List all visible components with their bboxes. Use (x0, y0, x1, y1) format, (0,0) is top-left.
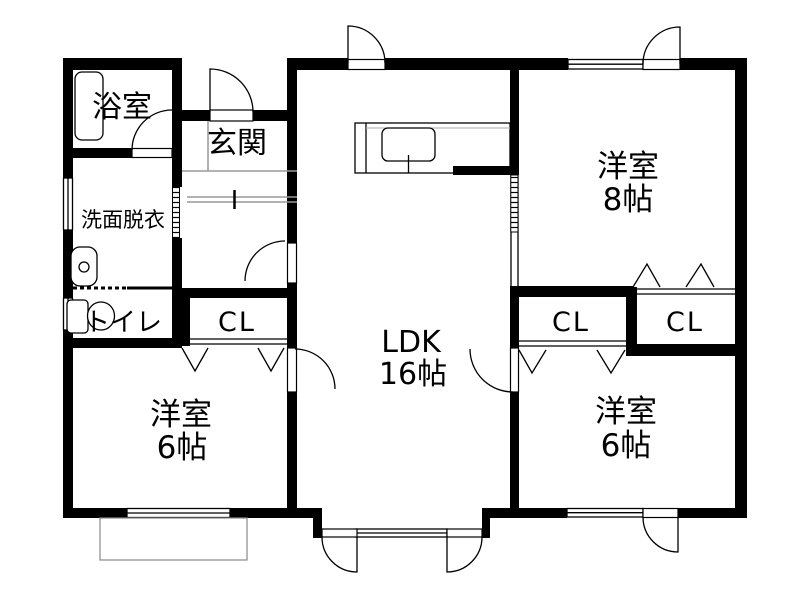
label-closet-hall: CL (218, 307, 256, 338)
sliding-doors (173, 175, 519, 286)
floor-plan: 浴室 玄関 洗面脱衣 トイレ CL LDK 16帖 洋室 6帖 洋室 8帖 CL… (0, 0, 800, 600)
hall-ldk-door (245, 241, 297, 283)
label-ldk: LDK (381, 325, 442, 360)
label-washroom: 洗面脱衣 (81, 208, 165, 232)
label-bedroom-sw-size: 6帖 (157, 430, 208, 466)
doors (132, 26, 680, 572)
bedroom-ne-north-door (643, 27, 680, 70)
label-bedroom-ne: 洋室 (597, 149, 659, 185)
terrace (100, 518, 247, 560)
label-closet-east-right: CL (666, 307, 704, 338)
label-toilet: トイレ (84, 308, 162, 338)
kitchen-half-wall (453, 166, 519, 175)
washroom-window (64, 178, 73, 230)
label-bedroom-ne-size: 8帖 (603, 182, 654, 218)
entrance-door (210, 69, 253, 121)
kitchen-counter (355, 123, 510, 173)
label-closet-east-left: CL (552, 307, 590, 338)
label-ldk-size: 16帖 (379, 357, 447, 392)
label-bedroom-se-size: 6帖 (601, 428, 652, 464)
bay-door-right (447, 529, 482, 572)
floor-plan-drawing: 浴室 玄関 洗面脱衣 トイレ CL LDK 16帖 洋室 6帖 洋室 8帖 CL… (0, 0, 800, 600)
bay-fixed-window (356, 529, 447, 537)
bedroom-se-ldk-door (470, 348, 519, 392)
bedroom-sw-window (127, 509, 230, 518)
label-bathroom: 浴室 (92, 90, 152, 125)
washbasin (71, 247, 97, 286)
windows (64, 60, 644, 538)
closet-fronts (182, 264, 735, 373)
bedroom-sw-door (288, 348, 336, 392)
ldk-bedroom-ne-sliding-door (511, 175, 518, 286)
bedroom-ne-window (568, 60, 643, 70)
bay-door-left (322, 529, 357, 572)
bedroom-se-south-door (643, 509, 678, 553)
bedroom-se-window (567, 509, 643, 518)
label-entrance: 玄関 (207, 126, 267, 161)
label-bedroom-se: 洋室 (595, 394, 657, 430)
ldk-north-door (348, 26, 385, 70)
washroom-sliding-door (173, 187, 180, 238)
label-bedroom-sw: 洋室 (150, 397, 212, 433)
